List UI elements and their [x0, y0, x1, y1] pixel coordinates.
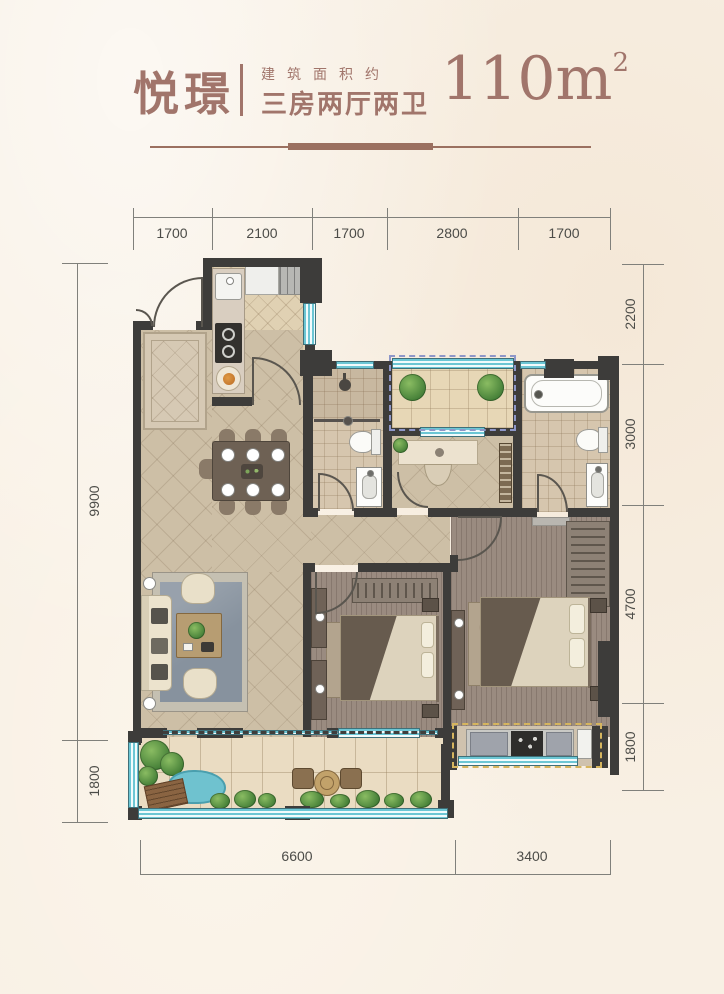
- floor-lamp-icon: [143, 697, 156, 710]
- half-gift-area-outline: [389, 355, 516, 431]
- wall-segment: [303, 373, 313, 515]
- bathtub: [524, 374, 609, 413]
- dim-tick: [622, 364, 664, 365]
- dim-label: 9900: [86, 485, 102, 516]
- hanger-rail-icon: [357, 583, 433, 598]
- dim-tick: [212, 208, 213, 250]
- wall-segment: [203, 258, 212, 330]
- study-plant-icon: [393, 438, 408, 453]
- garden-shrub-icon: [410, 791, 432, 808]
- toilet-tank: [371, 429, 381, 455]
- dim-label: 6600: [281, 848, 312, 864]
- area-unit: m: [556, 44, 613, 114]
- plan-name: 悦璟: [133, 58, 235, 124]
- window: [128, 742, 139, 808]
- header-divider: [240, 64, 243, 116]
- hallway-floor: [311, 515, 450, 565]
- entry-door-arc-small: [136, 309, 153, 326]
- armchair: [181, 573, 215, 604]
- dim-tick: [62, 822, 108, 823]
- cabinet-knob-icon: [315, 684, 325, 694]
- desk-lamp-icon: [435, 448, 444, 457]
- dim-label: 1700: [156, 225, 187, 241]
- header: 悦璟 建筑面积约 三房两厅两卫 110m2: [0, 0, 724, 160]
- kitchen-door-leaf: [252, 357, 254, 405]
- shower-screen-handle: [343, 416, 353, 426]
- dining-chair: [219, 501, 235, 515]
- wall-segment: [354, 508, 397, 517]
- cabinet-knob-icon: [454, 618, 464, 628]
- dim-label: 1800: [86, 765, 102, 796]
- dim-tick: [455, 840, 456, 875]
- bath-mat: [532, 517, 570, 526]
- shower-zone: [311, 369, 383, 419]
- toilet-tank: [598, 427, 608, 453]
- stove-icon: [215, 323, 242, 363]
- wall-corner-block: [544, 359, 574, 378]
- dim-tick: [312, 208, 313, 250]
- pillow-icon: [421, 622, 434, 648]
- dim-tick: [622, 790, 664, 791]
- sofa-cushion: [151, 664, 168, 680]
- garden-boundary-dashes: [163, 731, 435, 734]
- sink-cabinet: [586, 463, 608, 507]
- dim-label: 1700: [548, 225, 579, 241]
- garden-shrub-icon: [258, 793, 276, 808]
- legend: 赠送面积 半赠送面积: [0, 900, 724, 950]
- wall-segment: [212, 397, 252, 406]
- dim-tick: [140, 840, 141, 875]
- plate-icon: [221, 483, 235, 497]
- garden-shrub-icon: [210, 793, 230, 809]
- wall-segment: [441, 744, 450, 810]
- bathroom-door-leaf: [318, 473, 320, 511]
- fruit-plate-icon: [216, 366, 241, 391]
- dim-tick: [622, 703, 664, 704]
- dim-label: 3400: [516, 848, 547, 864]
- dining-table: [212, 441, 290, 501]
- plate-icon: [246, 483, 260, 497]
- dim-tick: [518, 208, 519, 250]
- dim-label: 2800: [436, 225, 467, 241]
- wall-corner-block: [598, 641, 611, 717]
- sofa-cushion: [151, 638, 168, 654]
- sink-basin-icon: [362, 475, 377, 499]
- sofa: [141, 595, 172, 691]
- table-book-icon: [183, 643, 193, 651]
- headboard: [436, 616, 439, 702]
- garden-shrub-icon: [356, 790, 380, 808]
- faucet-icon: [595, 466, 602, 473]
- dim-label: 1800: [622, 731, 638, 762]
- armchair: [183, 668, 217, 699]
- bed: [480, 597, 590, 687]
- table-tray-icon: [201, 642, 214, 652]
- plate-icon: [246, 448, 260, 462]
- fruit-icon: [223, 373, 235, 385]
- kitchen-sink-icon: [215, 273, 242, 300]
- study-desk: [398, 440, 478, 465]
- dim-label: 2200: [622, 298, 638, 329]
- entry-door-leaf: [201, 277, 203, 327]
- bedroom2-door-leaf: [315, 572, 317, 614]
- wall-segment: [303, 572, 311, 737]
- area-exponent: 2: [612, 48, 629, 78]
- garden-table-top: [320, 776, 334, 790]
- garden-shrub-icon: [330, 794, 350, 808]
- dining-chair: [271, 501, 287, 515]
- garden-shrub-icon: [384, 793, 404, 808]
- dim-right-line: [643, 264, 644, 790]
- nightstand: [422, 598, 439, 612]
- shower-head-icon: [339, 379, 351, 391]
- sink-basin-icon: [591, 472, 604, 498]
- dining-chair: [245, 501, 261, 515]
- kitchen-worktop: [245, 266, 279, 295]
- garden-chair: [292, 768, 314, 789]
- wall-segment: [133, 321, 141, 745]
- faucet-icon: [367, 470, 374, 477]
- bed: [340, 615, 438, 701]
- master-bath-door-leaf: [537, 474, 539, 512]
- window: [336, 361, 374, 369]
- sofa-cushion: [151, 608, 168, 624]
- nightstand: [422, 704, 439, 718]
- master-door-leaf: [458, 516, 502, 518]
- floor-plan-page: 悦璟 建筑面积约 三房两厅两卫 110m2 1700 2100 1700 280…: [0, 0, 724, 994]
- sink-cabinet: [356, 467, 382, 507]
- dim-tick: [387, 208, 388, 250]
- subtitle-rooms: 三房两厅两卫: [261, 84, 429, 121]
- entry-rug-inner: [151, 340, 199, 422]
- bookshelf: [499, 443, 512, 503]
- dim-tick: [610, 208, 611, 250]
- coffee-table: [176, 613, 222, 658]
- wall-segment: [450, 508, 458, 517]
- dim-bottom-line: [140, 874, 610, 875]
- nightstand: [590, 598, 607, 613]
- header-rule-thick: [288, 143, 433, 150]
- dim-label: 2100: [246, 225, 277, 241]
- faucet-icon: [226, 277, 234, 285]
- wall-segment: [610, 361, 619, 775]
- wall-segment: [443, 563, 451, 737]
- dim-label: 4700: [622, 588, 638, 619]
- dim-tick: [610, 840, 611, 875]
- pillow-icon: [569, 638, 585, 668]
- dim-tick: [133, 208, 134, 250]
- plate-icon: [271, 483, 285, 497]
- entry-door-arc: [153, 277, 203, 327]
- pillow-icon: [569, 604, 585, 634]
- area-figure: 110m2: [441, 44, 629, 114]
- garden-shrub-icon: [234, 790, 256, 808]
- dining-chair: [199, 459, 213, 479]
- area-value: 110: [441, 44, 556, 114]
- table-plant-icon: [188, 622, 205, 639]
- dim-left-line: [77, 263, 78, 822]
- cabinet-knob-icon: [454, 690, 464, 700]
- window: [303, 303, 316, 345]
- floor-lamp-icon: [143, 577, 156, 590]
- burner-icon: [222, 345, 235, 358]
- dim-tick: [62, 740, 108, 741]
- garden-chair: [340, 768, 362, 789]
- burner-icon: [222, 328, 235, 341]
- dim-tick: [622, 505, 664, 506]
- gift-area-outline: [452, 723, 602, 768]
- dim-label: 1700: [333, 225, 364, 241]
- sofa-back: [142, 596, 149, 690]
- centerpiece-icon: [241, 464, 263, 479]
- subtitle-area-approx: 建筑面积约: [261, 64, 391, 84]
- window: [520, 361, 546, 369]
- wall-segment: [568, 508, 619, 517]
- window: [138, 808, 448, 819]
- plate-icon: [271, 448, 285, 462]
- pillow-icon: [421, 652, 434, 678]
- bathtub-drain-icon: [534, 390, 543, 399]
- hanger-rail-icon: [571, 526, 605, 602]
- wardrobe: [566, 521, 610, 607]
- wall-segment: [303, 508, 318, 517]
- wall-segment: [303, 563, 315, 572]
- dim-tick: [622, 264, 664, 265]
- wall-segment: [203, 258, 315, 267]
- entry-rug: [143, 332, 207, 430]
- plate-icon: [221, 448, 235, 462]
- wall-corner-block: [300, 258, 322, 303]
- shower-arm: [343, 373, 346, 380]
- dim-tick: [62, 263, 108, 264]
- dim-label: 3000: [622, 418, 638, 449]
- dim-top-line: [133, 217, 610, 218]
